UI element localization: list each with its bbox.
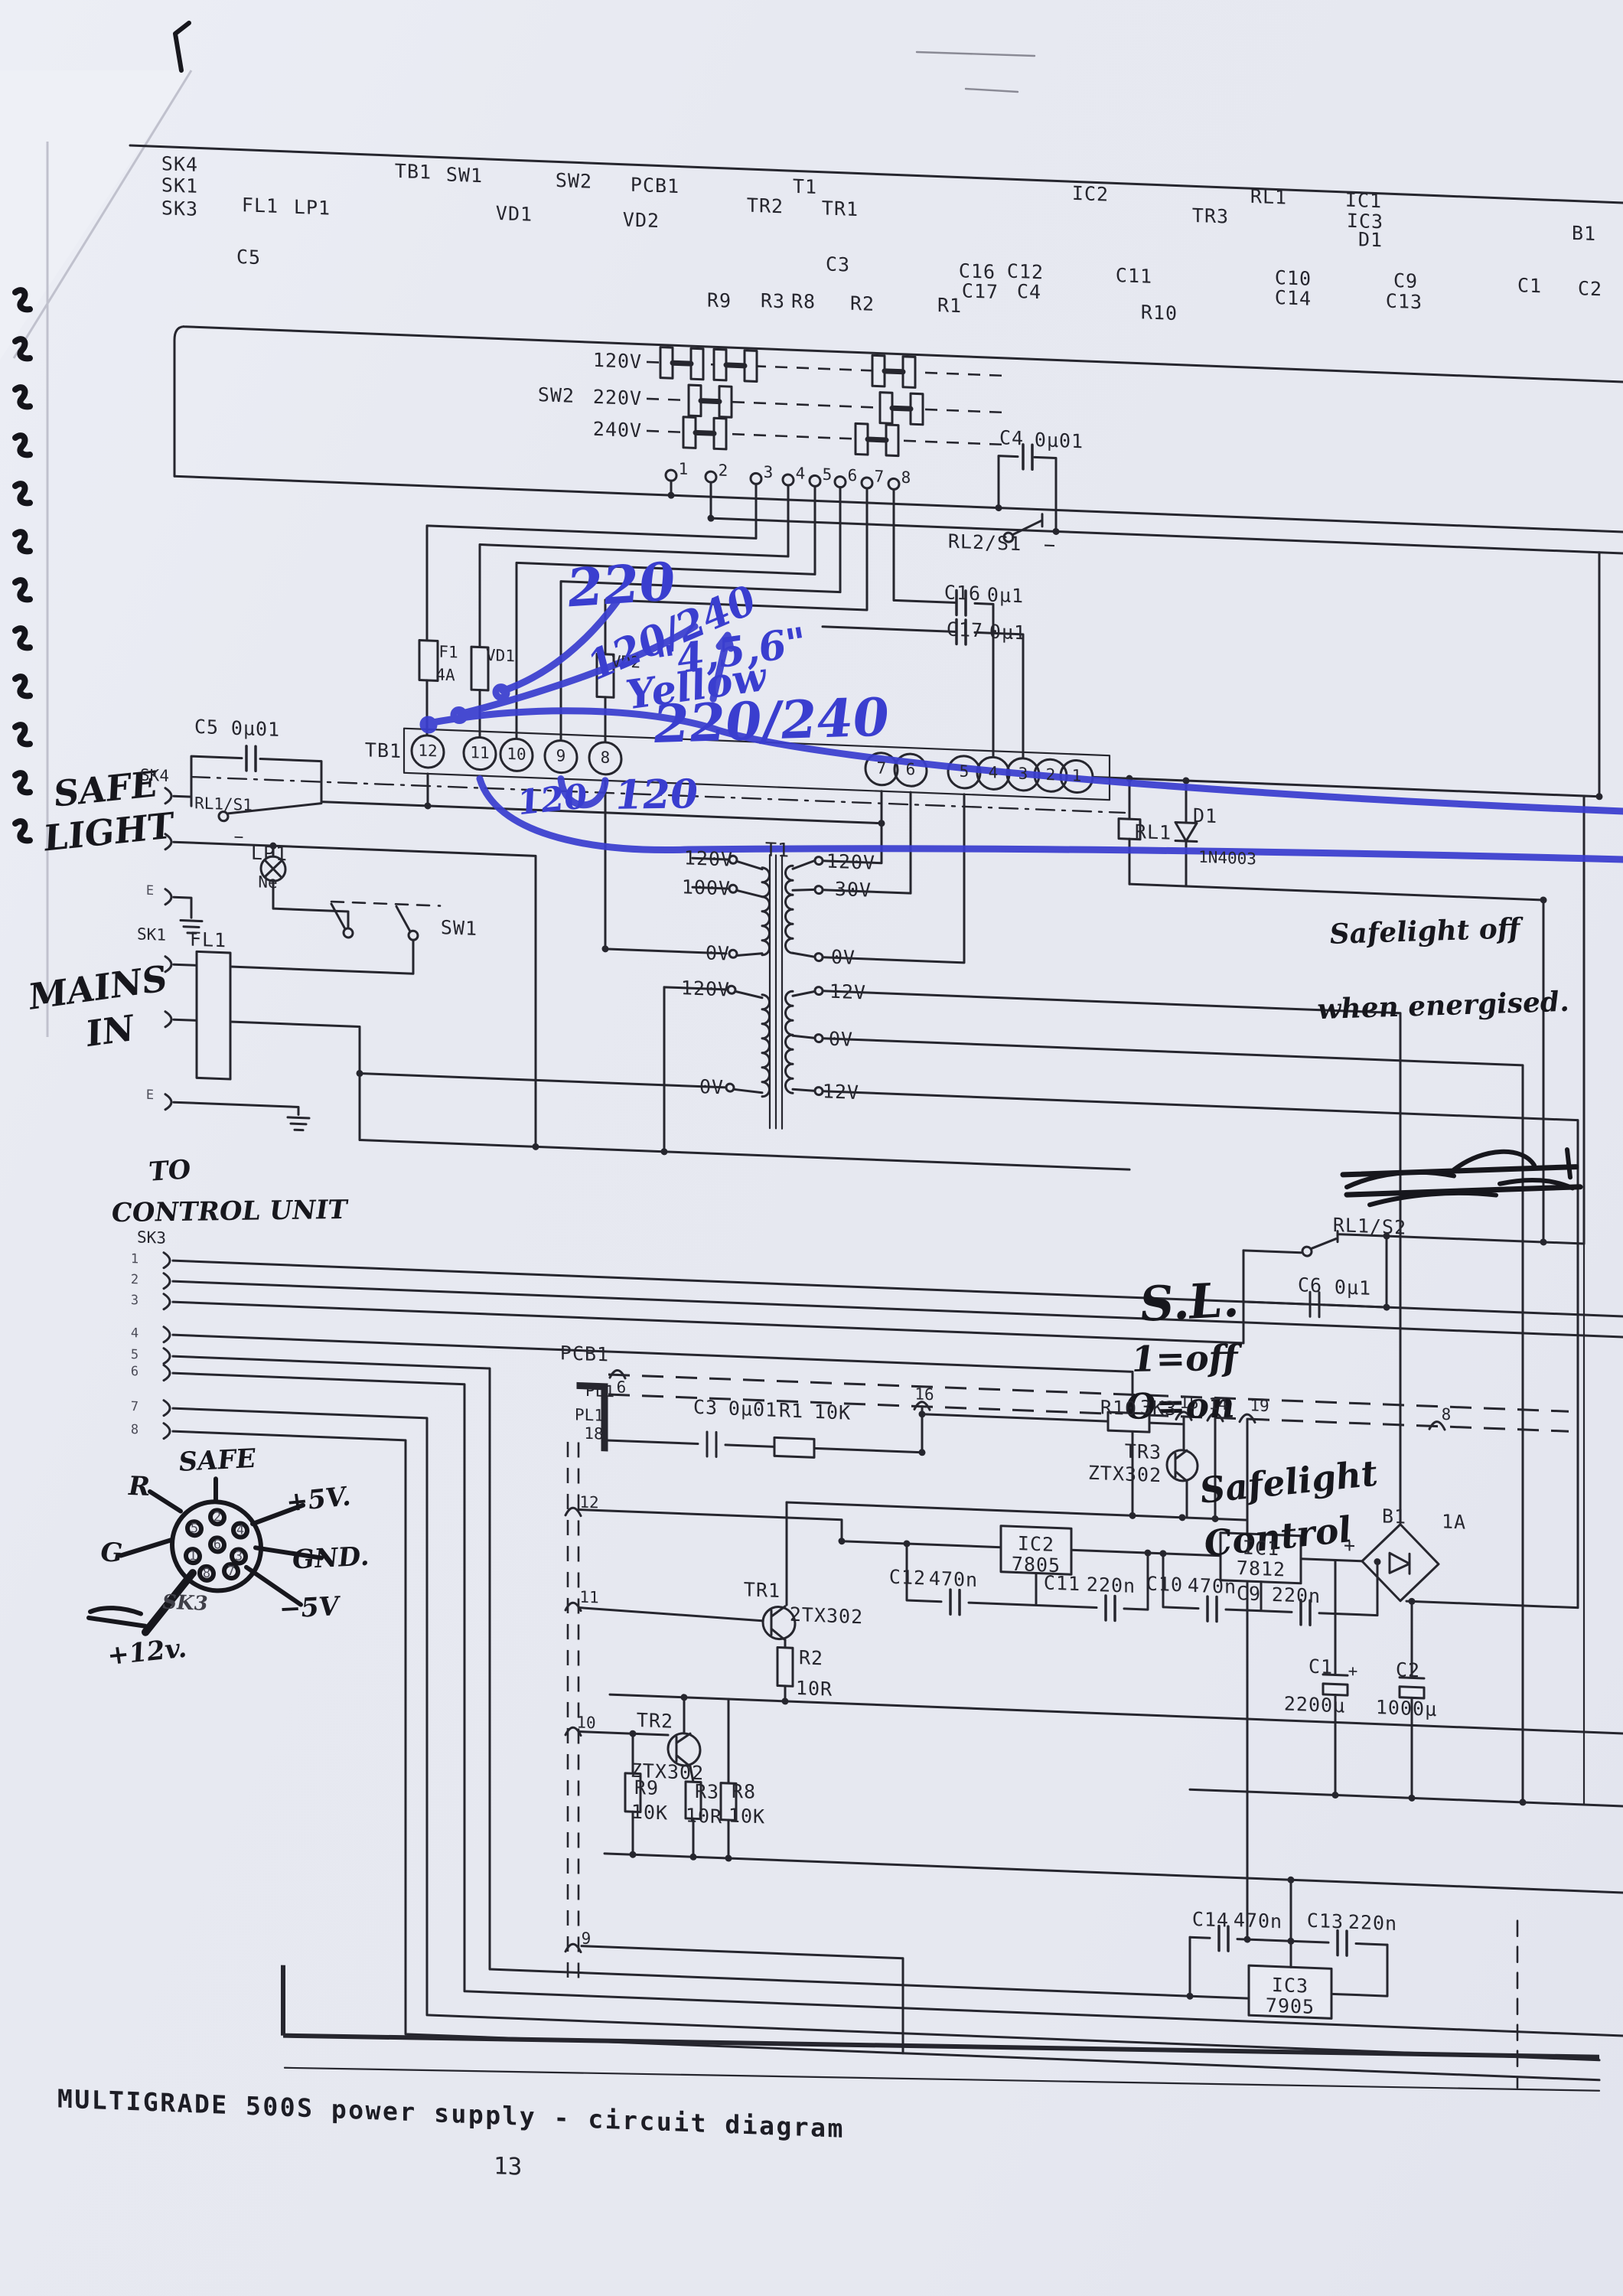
pl1-a: PL1 (585, 1381, 614, 1401)
sw2-pin-6: 6 (848, 466, 858, 484)
idx-tr1: TR1 (822, 197, 859, 220)
idx-sk4: SK4 (161, 152, 198, 176)
r10-val: 3K3 (1140, 1396, 1177, 1420)
c5-val: 0µ01 (231, 717, 280, 741)
idx-pcb1: PCB1 (631, 174, 680, 197)
idx-r10: R10 (1141, 301, 1178, 325)
blue-220: 220 (564, 551, 679, 619)
rl1-s2: RL1/S2 (1333, 1214, 1406, 1239)
sk4-e: E (146, 883, 154, 899)
scanned-page: SK4SK1SK3FL1LP1TB1SW1SW2PCB1VD1VD2TR2T1T… (0, 0, 1623, 2296)
sk3-p5: 5 (131, 1347, 139, 1362)
f1: F1 (438, 642, 458, 661)
r2: R2 (799, 1646, 823, 1669)
tb1-8: 8 (601, 748, 611, 767)
vd1: VD1 (486, 646, 515, 665)
idx-sk3: SK3 (161, 197, 198, 220)
b1-plus: + (1344, 1534, 1356, 1557)
sk3-p1: 1 (131, 1251, 139, 1267)
c1-plus: + (1348, 1662, 1358, 1680)
t1-r2-12vb: 12V (823, 1080, 859, 1104)
sw2-220v: 220V (593, 386, 642, 409)
pin-4: 4 (236, 1522, 244, 1538)
t1-l-120v: 120V (684, 846, 733, 870)
hw-pin-m5v: −5V (278, 1591, 341, 1625)
ic3: IC3 (1272, 1974, 1309, 1998)
sk3-bus (164, 1209, 1623, 2081)
t1-l-0v: 0V (706, 941, 730, 964)
hw-pin-safe: SAFE (178, 1443, 257, 1478)
idx-c9: C9 (1393, 269, 1418, 292)
c4: C4 (999, 426, 1024, 449)
t1-l2-120v: 120V (681, 977, 730, 1000)
c6-val: 0µ1 (1335, 1276, 1371, 1300)
tr1-type: 2TX302 (790, 1603, 863, 1629)
lp1: LP1 (251, 842, 288, 866)
c5: C5 (194, 716, 219, 739)
sk3-p3: 3 (131, 1293, 139, 1308)
pl1-pin16: 16 (914, 1384, 934, 1404)
ic1-type: 7812 (1237, 1557, 1286, 1580)
pl1-pin18: 18 (584, 1424, 603, 1443)
idx-vd2: VD2 (623, 208, 660, 232)
idx-lp1: LP1 (294, 196, 331, 220)
pin-2: 2 (213, 1509, 221, 1525)
pl1-pin14: 14 (1208, 1394, 1227, 1414)
c14: C14 (1192, 1908, 1229, 1932)
r10: R10 (1100, 1396, 1137, 1420)
rl2-s1: RL2/S1 (948, 530, 1022, 556)
idx-c13: C13 (1386, 290, 1423, 314)
tb1-4: 4 (989, 763, 999, 781)
sw2-pin-4: 4 (796, 464, 806, 482)
c2: C2 (1396, 1658, 1420, 1681)
idx-rl1: RL1 (1250, 185, 1287, 209)
t1-r-30v: 30V (835, 878, 872, 902)
page-number: 13 (494, 2152, 522, 2180)
t1-r-0v: 0V (831, 946, 855, 969)
hw-1-off: 1=off (1130, 1337, 1239, 1380)
idx-ic2: IC2 (1072, 182, 1109, 206)
hw-control-unit: CONTROL UNIT (111, 1195, 348, 1228)
hw-pin-gnd: GND. (291, 1541, 370, 1576)
idx-r8: R8 (791, 290, 816, 313)
idx-r1: R1 (937, 294, 962, 317)
c10: C10 (1146, 1573, 1183, 1596)
idx-r2: R2 (850, 292, 875, 315)
idx-ic1: IC1 (1345, 189, 1382, 213)
c2-val: 1000µ (1376, 1696, 1437, 1720)
sw2-pin-1: 1 (679, 460, 689, 478)
hw-sl: S.L. (1137, 1272, 1240, 1332)
bottom-border (283, 1965, 1599, 2118)
hw-pin-g: G (100, 1538, 122, 1569)
tr1: TR1 (744, 1578, 781, 1602)
pl1-pin8: 8 (1442, 1405, 1452, 1424)
pl1-pin9: 9 (582, 1929, 592, 1948)
pin-7: 7 (227, 1564, 235, 1579)
c13-val: 220n (1348, 1911, 1397, 1935)
blue-120-a: 120 (515, 777, 590, 823)
pl1-pin12: 12 (579, 1493, 598, 1512)
tr3-type: ZTX302 (1088, 1462, 1162, 1487)
sw2-pin-3: 3 (764, 463, 774, 481)
tb1-9: 9 (556, 746, 566, 765)
idx-r9: R9 (707, 289, 732, 311)
idx-c1: C1 (1517, 274, 1542, 297)
blue-120-b: 120 (614, 771, 699, 819)
junction-dots (270, 477, 1603, 2016)
idx-c11: C11 (1116, 264, 1152, 288)
schematic-area: SK4SK1SK3FL1LP1TB1SW1SW2PCB1VD1VD2TR2T1T… (0, 0, 1623, 2296)
d1-type: 1N4003 (1198, 848, 1256, 869)
hw-pin-r: R (129, 1471, 150, 1502)
c6: C6 (1298, 1274, 1322, 1296)
sw2-240v: 240V (593, 418, 642, 442)
pin-8: 8 (203, 1566, 210, 1581)
ic1: IC1 (1243, 1536, 1279, 1560)
t1-r2-12v: 12V (829, 980, 866, 1004)
pin-1: 1 (189, 1548, 197, 1564)
c13: C13 (1307, 1910, 1344, 1933)
c4-val: 0µ01 (1035, 429, 1084, 452)
idx-vd1: VD1 (496, 202, 533, 226)
r3-val: 10R (686, 1804, 722, 1828)
idx-sk1: SK1 (161, 174, 198, 197)
rl1-coil: RL1 (1135, 820, 1172, 844)
fl1: FL1 (190, 928, 227, 951)
r8-val: 10K (728, 1805, 765, 1828)
c17: C17 (947, 618, 983, 641)
sk3-p2: 2 (131, 1272, 139, 1287)
sk3-p6: 6 (131, 1364, 139, 1379)
pl1-pin11: 11 (579, 1588, 598, 1607)
sw1: SW1 (441, 916, 477, 940)
f1-rating: 4A (435, 665, 455, 684)
c10-val: 470n (1188, 1574, 1237, 1598)
sw2-pin-2: 2 (719, 461, 728, 480)
pl1-pin15: 15 (1179, 1394, 1198, 1413)
pl1-b: PL1 (575, 1405, 604, 1424)
tb1-11: 11 (470, 743, 489, 762)
idx-c2: C2 (1578, 277, 1602, 300)
c3: C3 (693, 1396, 718, 1419)
t1-r2-0v: 0V (829, 1028, 853, 1051)
idx-sw1: SW1 (446, 163, 483, 187)
idx-d1: D1 (1358, 228, 1383, 251)
idx-tr3: TR3 (1192, 204, 1229, 228)
r9-val: 10K (631, 1801, 668, 1825)
blue-220240: 220/240 (651, 687, 891, 755)
c16-val: 0µ1 (987, 584, 1024, 608)
tb1-12: 12 (418, 741, 437, 760)
hw-safelight-off: Safelight off (1328, 912, 1521, 951)
idx-sw2: SW2 (556, 169, 592, 193)
tb1-5: 5 (960, 762, 970, 781)
lp1-ne: Ne (258, 872, 277, 892)
c12-val: 470n (929, 1567, 978, 1591)
rl2-s1-minus: − (1044, 533, 1056, 556)
idx-r3: R3 (761, 289, 785, 312)
idx-tr2: TR2 (747, 194, 784, 217)
tb1-label: TB1 (365, 739, 402, 762)
ic2: IC2 (1018, 1532, 1054, 1556)
hw-pin-sk3: SK3 (162, 1591, 207, 1616)
hw-to: TO (148, 1154, 193, 1188)
b1-rating: 1A (1442, 1510, 1466, 1533)
tr2: TR2 (637, 1709, 673, 1733)
rl1-s1-minus: − (234, 827, 244, 846)
c9-val: 220n (1272, 1583, 1321, 1607)
sk3-p4: 4 (131, 1326, 139, 1341)
sk1-socket: SK1 (137, 925, 166, 944)
tb1-6: 6 (906, 760, 916, 778)
c3-val: 0µ01 (728, 1397, 777, 1421)
r2-val: 10R (796, 1677, 833, 1701)
sk1-e: E (146, 1088, 154, 1103)
sw2-pin-8: 8 (901, 468, 911, 487)
rl1-s1: RL1/S1 (194, 794, 253, 814)
sw2-pin-7: 7 (875, 467, 885, 485)
idx-c5: C5 (236, 246, 261, 269)
tb1-3: 3 (1018, 765, 1028, 783)
c16: C16 (944, 581, 981, 605)
sk3-p8: 8 (131, 1422, 139, 1437)
r8: R8 (732, 1780, 756, 1803)
sw2-pin-5: 5 (823, 465, 833, 484)
c14-val: 470n (1234, 1909, 1282, 1932)
r1-val: 10K (814, 1401, 851, 1424)
t1-label: T1 (765, 838, 790, 861)
sw2-120v: 120V (593, 349, 642, 373)
sk3-p7: 7 (131, 1399, 139, 1414)
idx-c17: C17 (962, 279, 999, 303)
idx-c3: C3 (826, 253, 850, 276)
pl1-pin6: 6 (617, 1378, 627, 1396)
tb1-2: 2 (1046, 765, 1056, 784)
idx-c4: C4 (1017, 280, 1041, 303)
r3: R3 (695, 1780, 719, 1803)
c1: C1 (1309, 1655, 1333, 1678)
mains-in-circuit (165, 951, 1129, 1169)
tr3: TR3 (1125, 1440, 1162, 1463)
tb1-7: 7 (877, 758, 887, 777)
pin-6: 6 (213, 1537, 221, 1552)
c9: C9 (1237, 1582, 1261, 1605)
pl1-pin19: 19 (1250, 1396, 1269, 1415)
ic3-type: 7905 (1266, 1994, 1315, 2018)
sk4-socket: SK4 (140, 766, 169, 785)
b1: B1 (1382, 1505, 1406, 1528)
idx-b1: B1 (1572, 222, 1596, 245)
idx-fl1: FL1 (242, 194, 279, 217)
idx-c14: C14 (1275, 286, 1312, 310)
hw-pin-5v: +5V. (284, 1481, 352, 1518)
tb1-1: 1 (1072, 766, 1082, 784)
idx-t1: T1 (793, 175, 817, 198)
pin-3: 3 (235, 1548, 243, 1564)
c17-val: 0µ1 (989, 621, 1026, 644)
c12: C12 (889, 1566, 926, 1590)
hw-in: IN (83, 1007, 138, 1055)
t1-l2-0v: 0V (699, 1075, 724, 1098)
tb1-10: 10 (507, 745, 526, 764)
d1: D1 (1193, 804, 1217, 827)
r9: R9 (634, 1776, 659, 1799)
pcb1: PCB1 (560, 1342, 609, 1365)
r1: R1 (779, 1399, 803, 1422)
sw2-label: SW2 (538, 383, 575, 407)
t1-r-120v: 120V (826, 850, 875, 873)
c11: C11 (1044, 1571, 1080, 1595)
t1-l-100v: 100V (682, 876, 731, 899)
pl1-pin10: 10 (576, 1713, 595, 1732)
circuit-linework (0, 0, 1623, 2296)
pin-5: 5 (191, 1521, 198, 1536)
c1-val: 2200µ (1284, 1692, 1345, 1717)
c11-val: 220n (1087, 1574, 1136, 1597)
idx-tb1: TB1 (395, 160, 432, 184)
sk3-conn: SK3 (137, 1228, 166, 1247)
